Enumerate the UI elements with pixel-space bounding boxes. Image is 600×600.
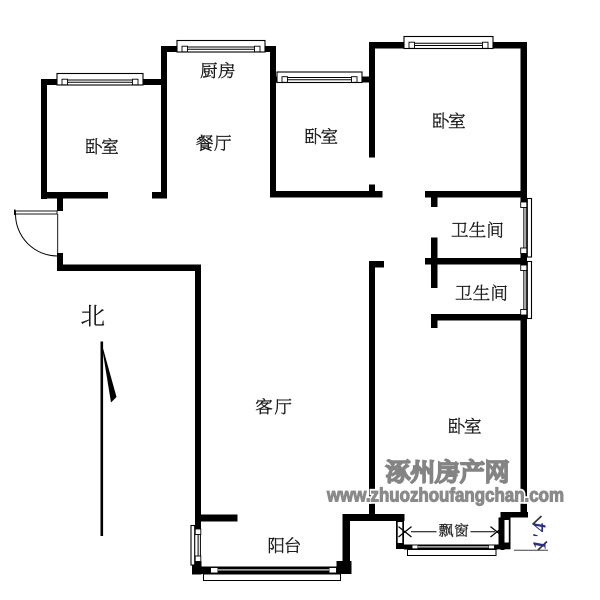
svg-text:www.zhuozhoufangchan.com: www.zhuozhoufangchan.com	[326, 485, 564, 507]
svg-text:1'4: 1'4	[531, 521, 551, 549]
